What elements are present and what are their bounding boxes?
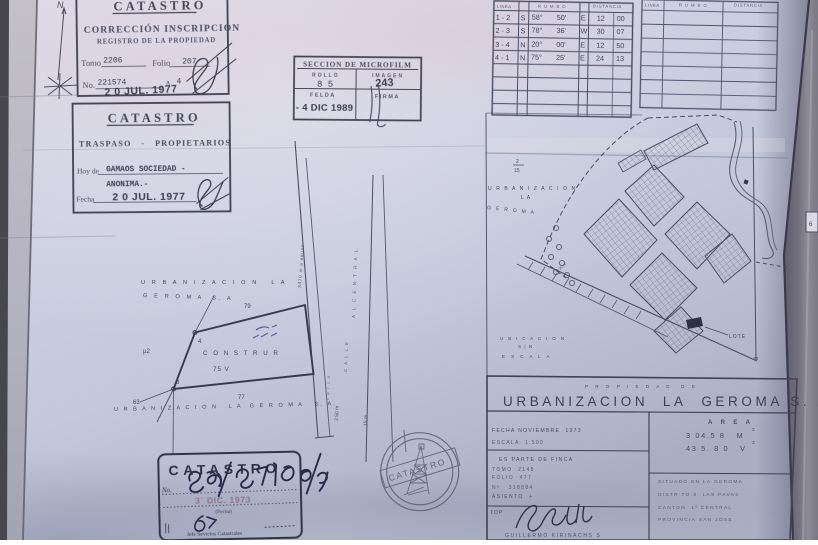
svg-text:3 - 4: 3 - 4	[495, 40, 510, 49]
svg-text:TOP: TOP	[490, 510, 503, 516]
svg-text:c e r c a: c e r c a	[325, 375, 331, 400]
svg-text:8 5: 8 5	[317, 80, 333, 90]
svg-text:P R O P I E D A D D E: P R O P I E D A D D E	[585, 384, 698, 389]
svg-text:75 V: 75 V	[213, 366, 230, 373]
svg-text:ES PARTE DE FINCA: ES PARTE DE FINCA	[499, 457, 574, 463]
svg-text:Fecha: Fecha	[76, 194, 95, 203]
svg-text:S: S	[521, 13, 526, 22]
svg-text:A R E A: A R E A	[708, 420, 753, 426]
svg-text:23: 23	[753, 356, 759, 361]
svg-text:77: 77	[238, 395, 245, 401]
svg-text:24: 24	[596, 54, 604, 63]
svg-text:N: N	[520, 40, 525, 49]
svg-text:L A: L A	[521, 195, 531, 201]
svg-text:00: 00	[617, 14, 625, 23]
svg-text:µ2: µ2	[143, 349, 150, 355]
svg-text:2: 2	[752, 427, 755, 432]
svg-text:243: 243	[375, 77, 394, 90]
svg-text:50: 50	[616, 41, 624, 50]
svg-text:CATASTRO: CATASTRO	[108, 111, 201, 126]
svg-text:ASIENTO +: ASIENTO +	[492, 494, 534, 500]
svg-text:30: 30	[596, 27, 604, 36]
svg-text:LOTE: LOTE	[729, 334, 746, 340]
svg-text:36': 36'	[556, 26, 566, 35]
svg-text:- 4 DIC 1989: - 4 DIC 1989	[296, 102, 354, 114]
svg-text:20°: 20°	[531, 39, 542, 48]
svg-text:GAMAOS SOCIEDAD -: GAMAOS SOCIEDAD -	[106, 166, 186, 175]
svg-text:PROVINCIA SAN JOSE: PROVINCIA SAN JOSE	[658, 517, 733, 523]
svg-text:U R B A N I Z A C I O N: U R B A N I Z A C I O N	[488, 186, 577, 192]
svg-text:3: 3	[752, 440, 755, 445]
svg-text:13: 13	[616, 54, 624, 63]
svg-text:12: 12	[597, 14, 605, 23]
svg-text:00': 00'	[556, 40, 566, 49]
svg-text:25': 25'	[556, 53, 566, 62]
svg-text:Tomo: Tomo	[81, 58, 101, 68]
svg-text:TRASPASO - PROPIETARIOS: TRASPASO - PROPIETARIOS	[79, 138, 231, 148]
svg-text:FECHA NOVIEMBRE 1973: FECHA NOVIEMBRE 1973	[492, 428, 582, 434]
svg-text:SITUADO EN LA GEROMA: SITUADO EN LA GEROMA	[658, 479, 743, 485]
svg-text:TOMO 2148: TOMO 2148	[492, 467, 535, 473]
svg-text:(Fecha): (Fecha)	[215, 508, 232, 515]
svg-text:ESCALA 1:500: ESCALA 1:500	[492, 440, 544, 446]
svg-text:15 m: 15 m	[363, 415, 369, 426]
svg-text:2 0 JUL. 1977: 2 0 JUL. 1977	[112, 191, 185, 204]
svg-text:W: W	[580, 26, 587, 35]
svg-text:S | N: S | N	[518, 344, 533, 349]
svg-text:78°: 78°	[531, 25, 542, 34]
svg-text:1 - 2: 1 - 2	[496, 13, 511, 22]
svg-text:N: N	[520, 53, 525, 62]
svg-text:RUMBO: RUMBO	[538, 4, 569, 10]
svg-text:CANTON 1º CENTRAL: CANTON 1º CENTRAL	[658, 505, 732, 511]
svg-text:ROLLO: ROLLO	[312, 73, 340, 79]
svg-text:12: 12	[596, 41, 604, 50]
svg-text:E S C A L A: E S C A L A	[502, 354, 552, 359]
svg-text:DISTANCIA: DISTANCIA	[593, 4, 622, 10]
svg-text:LINEA: LINEA	[497, 4, 512, 9]
svg-text:DISTANCIA: DISTANCIA	[734, 2, 763, 8]
svg-text:4 - 1: 4 - 1	[495, 53, 510, 62]
svg-text:E: E	[581, 13, 586, 22]
svg-text:S: S	[520, 26, 525, 35]
svg-text:58°: 58°	[532, 13, 543, 22]
svg-text:FOLIO 477: FOLIO 477	[492, 475, 532, 481]
svg-text:C O N S T R U R: C O N S T R U R	[203, 350, 280, 357]
svg-text:FIRMA: FIRMA	[375, 94, 400, 100]
svg-text:E: E	[580, 53, 585, 62]
svg-text:ANONIMA.-: ANONIMA.-	[106, 181, 148, 189]
svg-text:Hoy de: Hoy de	[77, 166, 100, 175]
svg-text:U R B A N I Z A C I O N L A: U R B A N I Z A C I O N L A	[141, 280, 287, 286]
svg-text:E: E	[580, 40, 585, 49]
svg-text:3 04.5 8 M: 3 04.5 8 M	[686, 431, 744, 440]
svg-text:SECCION DE MICROFILM: SECCION DE MICROFILM	[303, 61, 412, 70]
svg-text:FELDA: FELDA	[310, 93, 336, 99]
svg-text:2: 2	[516, 159, 519, 165]
svg-text:2.50 m: 2.50 m	[334, 406, 341, 421]
svg-text:URBANIZACION LA GEROMA S. A.: URBANIZACION LA GEROMA S. A.	[503, 394, 818, 409]
svg-text:43 5. 8 0 V: 43 5. 8 0 V	[686, 444, 747, 453]
svg-text:Jefe Se͏vicios Catastrales: Jefe Se͏vicios Catastrales	[187, 530, 242, 538]
svg-text:75°: 75°	[531, 52, 542, 61]
svg-text:RUMBO: RUMBO	[679, 2, 710, 8]
svg-text:N: N	[57, 0, 64, 10]
svg-text:07: 07	[616, 27, 624, 36]
svg-text:2206: 2206	[103, 56, 123, 65]
svg-text:2 - 3: 2 - 3	[495, 26, 510, 35]
svg-text:Nº 318884: Nº 318884	[492, 485, 534, 491]
svg-text:50': 50'	[557, 13, 567, 22]
svg-text:Folio: Folio	[152, 58, 170, 68]
svg-text:GUILLERMO KIRINACHS S: GUILLERMO KIRINACHS S	[505, 533, 601, 539]
svg-text:DISTR TO 9 LAS PAVAS: DISTR TO 9 LAS PAVAS	[658, 492, 740, 498]
svg-text:LINEA: LINEA	[645, 3, 660, 8]
svg-text:No.: No.	[161, 486, 172, 494]
svg-text:15: 15	[514, 168, 520, 174]
svg-text:79: 79	[244, 304, 251, 310]
svg-text:CATASTRO: CATASTRO	[113, 0, 206, 14]
svg-text:3´ DIC. 1973: 3´ DIC. 1973	[195, 495, 251, 506]
svg-text:No.: No.	[82, 80, 95, 90]
svg-text:63: 63	[133, 400, 140, 406]
svg-text:U B I C A C I O N: U B I C A C I O N	[500, 336, 566, 341]
